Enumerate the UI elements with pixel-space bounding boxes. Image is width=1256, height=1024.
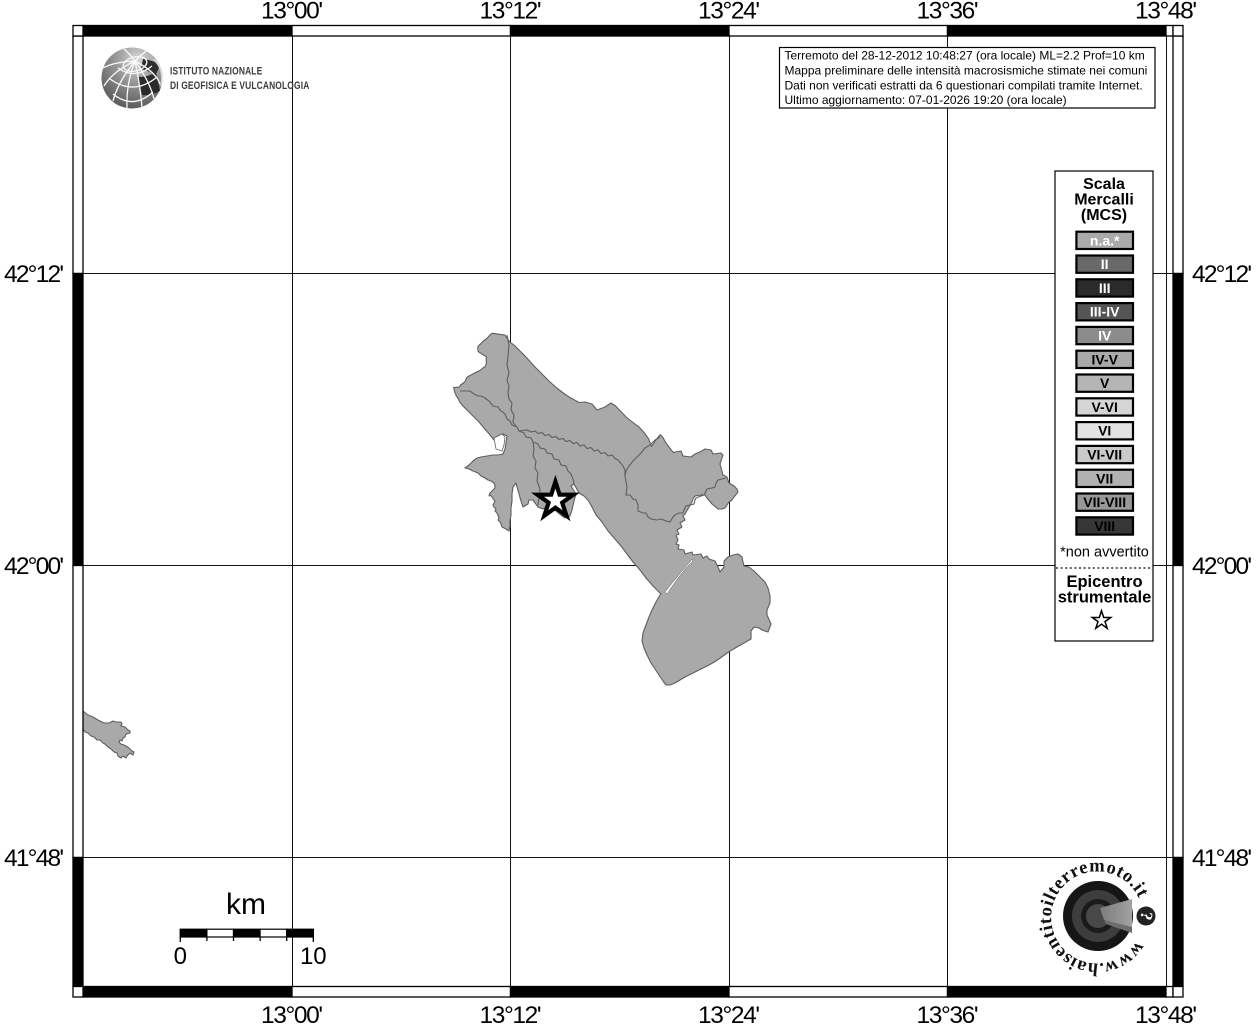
- svg-text:n.a.*: n.a.*: [1090, 232, 1120, 248]
- svg-text:42°12': 42°12': [1192, 261, 1252, 288]
- svg-text:13°00': 13°00': [261, 0, 323, 25]
- svg-text:42°12': 42°12': [4, 261, 64, 288]
- svg-text:Mercalli: Mercalli: [1074, 192, 1134, 209]
- svg-text:Mappa preliminare delle intens: Mappa preliminare delle intensità macros…: [785, 63, 1148, 77]
- svg-text:10: 10: [300, 943, 327, 970]
- svg-text:13°36': 13°36': [917, 0, 979, 25]
- svg-text:strumentale: strumentale: [1058, 589, 1152, 607]
- svg-text:VI-VII: VI-VII: [1087, 447, 1122, 463]
- svg-text:13°00': 13°00': [261, 1002, 323, 1024]
- svg-text:Scala: Scala: [1083, 176, 1125, 193]
- svg-text:VII-VIII: VII-VIII: [1083, 494, 1126, 510]
- svg-text:13°48': 13°48': [1135, 1002, 1197, 1024]
- svg-text:13°24': 13°24': [698, 0, 760, 25]
- svg-text:42°00': 42°00': [4, 553, 64, 580]
- svg-text:IV-V: IV-V: [1091, 351, 1118, 367]
- svg-text:42°00': 42°00': [1192, 553, 1252, 580]
- svg-text:Dati non verificati estratti d: Dati non verificati estratti da 6 questi…: [785, 78, 1143, 92]
- svg-text:13°48': 13°48': [1135, 0, 1197, 25]
- svg-text:VI: VI: [1098, 423, 1111, 439]
- svg-text:VII: VII: [1096, 470, 1113, 486]
- svg-text:V-VI: V-VI: [1091, 399, 1117, 415]
- svg-text:ISTITUTO NAZIONALE: ISTITUTO NAZIONALE: [170, 66, 263, 78]
- svg-text:(MCS): (MCS): [1081, 207, 1127, 224]
- svg-text:41°48': 41°48': [4, 845, 64, 872]
- svg-text:III-IV: III-IV: [1090, 304, 1120, 320]
- svg-text:13°24': 13°24': [698, 1002, 760, 1024]
- svg-text:13°12': 13°12': [480, 1002, 542, 1024]
- svg-text:DI GEOFISICA E VULCANOLOGIA: DI GEOFISICA E VULCANOLOGIA: [170, 80, 309, 92]
- svg-text:II: II: [1101, 256, 1109, 272]
- svg-text:13°36': 13°36': [917, 1002, 979, 1024]
- svg-text:III: III: [1099, 280, 1111, 296]
- svg-text:0: 0: [174, 943, 187, 970]
- svg-text:VIII: VIII: [1094, 518, 1115, 534]
- svg-text:IV: IV: [1098, 328, 1112, 344]
- svg-text:13°12': 13°12': [480, 0, 542, 25]
- svg-text:41°48': 41°48': [1192, 845, 1252, 872]
- svg-text:Terremoto del 28-12-2012 10:48: Terremoto del 28-12-2012 10:48:27 (ora l…: [785, 49, 1145, 63]
- svg-text:V: V: [1100, 375, 1110, 391]
- svg-text:*non avvertito: *non avvertito: [1060, 545, 1149, 561]
- svg-text:km: km: [226, 888, 266, 921]
- svg-text:Ultimo aggiornamento: 07-01-20: Ultimo aggiornamento: 07-01-2026 19:20 (…: [785, 93, 1067, 107]
